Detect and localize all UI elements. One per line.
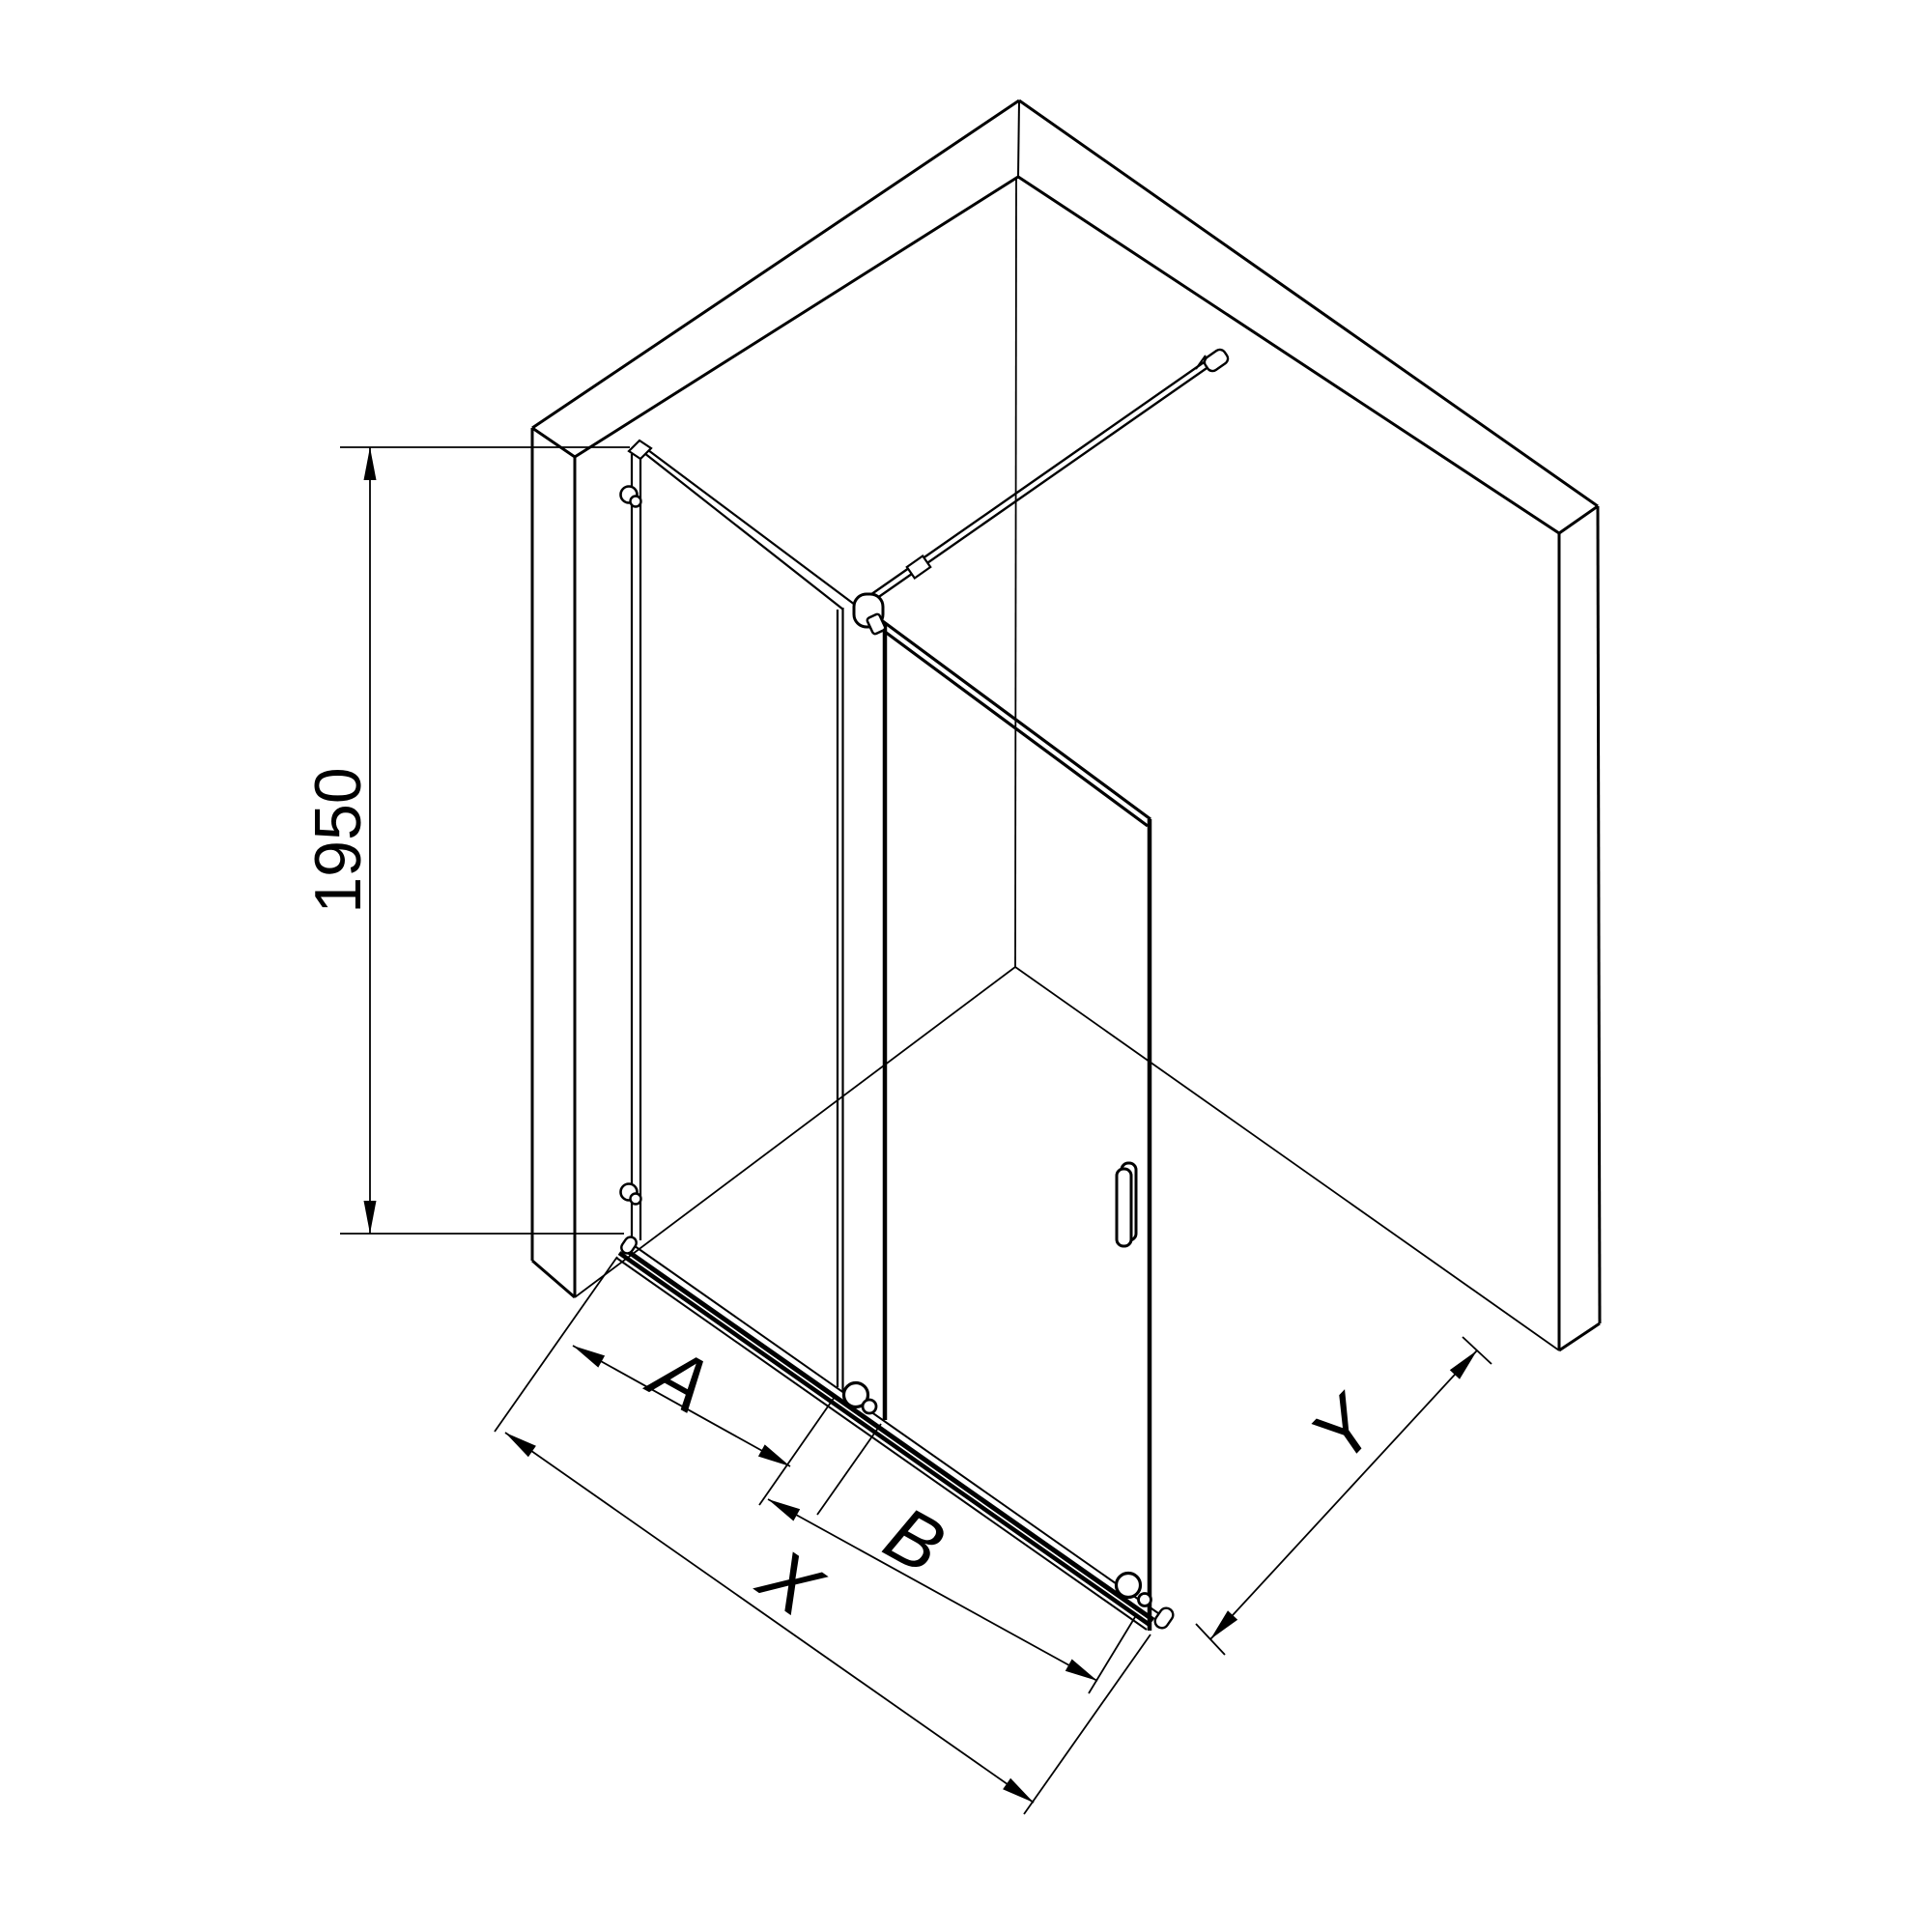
walls	[532, 100, 1600, 1350]
right-wall-end-bottom-band	[1559, 1323, 1600, 1350]
right-wall	[1015, 100, 1600, 1350]
y-dimension-label: Y	[1293, 1378, 1395, 1478]
rear-roller-axle-cap	[1139, 1594, 1151, 1606]
wall-profile-lower-clamp	[621, 1184, 641, 1205]
rail-right-cap-shape	[1152, 1605, 1176, 1631]
height-arrow-up	[364, 447, 377, 480]
right-wall-end-top-band	[1559, 506, 1598, 533]
shower-enclosure-drawing: 1950 A B X	[0, 0, 1932, 1932]
right-wall-inner-top-edge	[1018, 177, 1559, 533]
dimension-y: Y	[1196, 1337, 1492, 1655]
corner-vertical-line	[1015, 177, 1016, 967]
door-left-ext-line	[817, 1424, 881, 1515]
rear-roller-wheel	[1117, 1574, 1141, 1598]
fixed-panel-top-edge-inner	[644, 453, 843, 610]
junction-guide-bracket	[854, 594, 886, 635]
x-dimension-label: X	[743, 1531, 838, 1634]
x-arrow-left	[505, 1433, 536, 1457]
door-right-ext-line	[1024, 1634, 1151, 1814]
dimension-height: 1950	[301, 447, 630, 1234]
door-top-edge-inner	[877, 626, 1148, 826]
left-wall-inner-top-edge	[575, 177, 1018, 457]
rail-right-end-cap	[1152, 1605, 1176, 1631]
b-arrow-right	[1065, 1660, 1097, 1682]
rear-roller	[1117, 1574, 1151, 1606]
technical-drawing-page: 1950 A B X	[0, 0, 1932, 1932]
right-wall-outer-front-edge	[1598, 506, 1600, 1323]
left-ext-line	[495, 1257, 617, 1432]
right-wall-floor-line	[1015, 967, 1559, 1350]
corner-ridge-line	[1018, 100, 1019, 177]
wall-profile	[621, 440, 652, 1240]
b-arrow-left	[768, 1499, 800, 1521]
dimensions: 1950 A B X	[301, 447, 1492, 1814]
left-wall-end-top-band	[532, 428, 575, 457]
rail-bottom-line	[616, 1258, 1147, 1630]
height-arrow-down	[364, 1201, 377, 1234]
sliding-door	[844, 619, 1151, 1631]
support-bar	[854, 348, 1230, 636]
a-arrow-left	[573, 1346, 605, 1368]
a-arrow-right	[758, 1444, 790, 1466]
fixed-panel-top-edge-outer	[644, 447, 859, 608]
y-dim-line	[1210, 1350, 1477, 1639]
left-wall-end-bottom-band	[532, 1261, 575, 1297]
height-dimension-label: 1950	[301, 767, 375, 913]
x-arrow-right	[1003, 1778, 1034, 1803]
b-dimension-label: B	[871, 1490, 958, 1590]
right-wall-outer-top-edge	[1019, 100, 1598, 506]
left-wall-outer-top-edge	[532, 100, 1019, 428]
front-roller-axle-cap	[863, 1400, 876, 1413]
door-handle-front	[1117, 1169, 1131, 1246]
upper-clamp-knob	[631, 497, 641, 507]
door-handle	[1117, 1163, 1136, 1246]
a-dimension-label: A	[635, 1327, 724, 1430]
lower-clamp-knob	[631, 1194, 641, 1205]
rail-end-ext-line	[1089, 1617, 1135, 1693]
fixed-glass-panel	[644, 447, 859, 1391]
wall-profile-upper-clamp	[621, 487, 641, 507]
left-wall	[532, 100, 1019, 1297]
